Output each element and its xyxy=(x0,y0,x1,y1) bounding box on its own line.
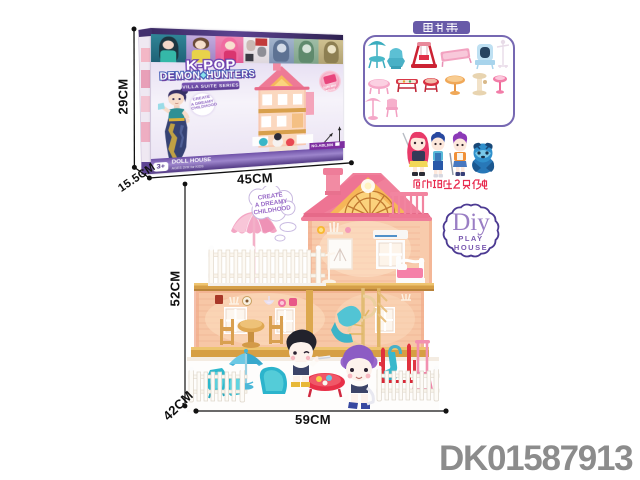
svg-text:HOUSE: HOUSE xyxy=(454,243,488,252)
svg-text:Diy: Diy xyxy=(452,209,490,236)
svg-text:PLAY: PLAY xyxy=(458,234,483,243)
